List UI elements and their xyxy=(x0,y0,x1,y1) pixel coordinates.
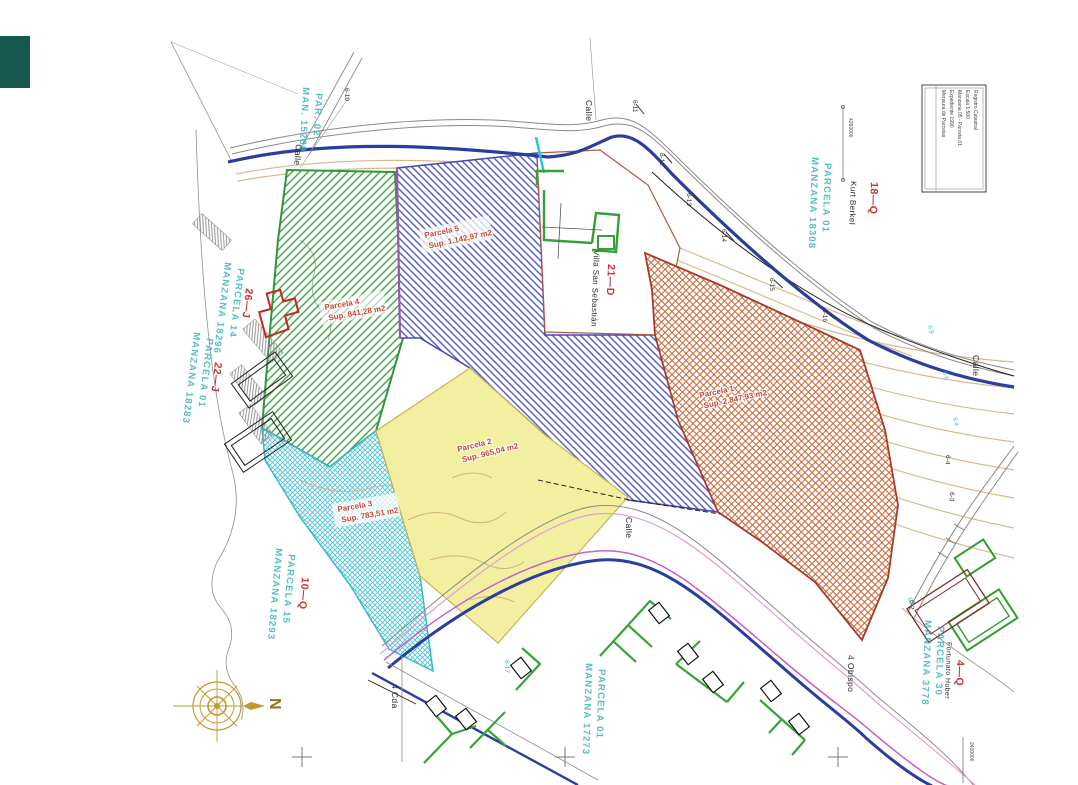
street-label-calle: Calle xyxy=(292,144,304,166)
block-label: MAN. 15289 xyxy=(297,87,311,153)
coordinate-label: 4260000 xyxy=(847,118,853,138)
street-label-calle: Calle xyxy=(624,517,634,538)
block-label: MANZANA 18283 xyxy=(180,332,202,425)
north-letter: N xyxy=(266,698,283,710)
station-tick: 6-15 xyxy=(768,278,775,291)
title-line-4: Escala 1:500 xyxy=(964,90,970,119)
cadastral-map-page: N Mensura de Parcelas Expediente 1990 Ma… xyxy=(0,0,1078,785)
station-tick: 6-16 xyxy=(821,309,828,322)
north-pointer xyxy=(243,702,265,710)
title-block: Mensura de Parcelas Expediente 1990 Manz… xyxy=(922,85,986,192)
owner-label: Kurt Berkel xyxy=(847,181,858,225)
block-label: MANZANA 17273 xyxy=(580,663,594,756)
station-tick: 6-13 xyxy=(685,193,692,206)
street-label-obispo: 4 Obispo xyxy=(846,655,856,692)
side-road-right xyxy=(902,446,1018,692)
elevation-label: 6.8 xyxy=(926,325,934,335)
title-line-3: Manzana 05 - Parcela 01 xyxy=(956,90,962,146)
station-tick: 6-12 xyxy=(658,153,665,166)
map-canvas: N Mensura de Parcelas Expediente 1990 Ma… xyxy=(0,0,1078,785)
station-tick: 6-11 xyxy=(631,100,638,113)
street-label-calle: Calle xyxy=(971,355,981,376)
title-line-5: Registro Catastral xyxy=(972,90,978,130)
north-compass: N xyxy=(173,670,283,742)
block-label: MANZANA 18308 xyxy=(806,157,820,250)
block-label: MANZANA 3778 xyxy=(919,620,933,706)
lot-code: 4—Q xyxy=(953,660,966,686)
lot-code: 18—Q xyxy=(867,182,880,215)
title-line-2: Expediente 1990 xyxy=(948,90,954,128)
station-tick: 6-17 xyxy=(503,660,510,673)
station-tick: 6-3 xyxy=(948,492,955,502)
elevation-label: 6.4 xyxy=(951,417,959,427)
block-label: PARCELA 01 xyxy=(820,163,833,233)
corner-swatch xyxy=(0,36,30,88)
station-tick: 6-14 xyxy=(720,229,727,242)
lot-code: 10—Q xyxy=(296,577,311,610)
block-label: PARCELA 01 xyxy=(594,669,607,739)
block-label: PAR. 02 xyxy=(311,93,324,137)
street-label-cda: 4 Cda xyxy=(390,684,400,709)
block-label: MANZANA 18293 xyxy=(265,548,284,641)
title-line-1: Mensura de Parcelas xyxy=(940,90,946,138)
station-tick: 6-4 xyxy=(944,455,951,465)
street-label-calle: Calle xyxy=(584,100,594,121)
coordinate-label: 2400000 xyxy=(968,742,974,762)
lot-code: 21—D xyxy=(604,264,617,296)
station-tick: 6-10 xyxy=(343,88,350,101)
